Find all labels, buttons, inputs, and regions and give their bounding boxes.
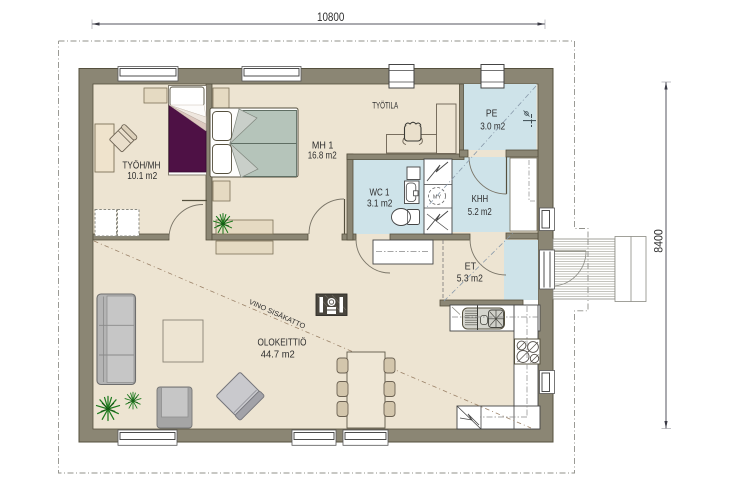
svg-text:3.1 m2: 3.1 m2 — [367, 199, 393, 210]
svg-text:10.1 m2: 10.1 m2 — [127, 171, 157, 182]
svg-text:8400: 8400 — [652, 229, 666, 253]
svg-text:TYÖTILA: TYÖTILA — [372, 101, 398, 111]
svg-text:WC 1: WC 1 — [370, 188, 390, 199]
svg-text:16.8 m2: 16.8 m2 — [308, 150, 337, 161]
svg-text:ET: ET — [465, 262, 477, 273]
svg-text:KHH: KHH — [472, 194, 489, 205]
svg-text:44.7 m2: 44.7 m2 — [261, 350, 295, 361]
svg-text:3.0 m2: 3.0 m2 — [480, 122, 505, 133]
svg-text:10800: 10800 — [317, 10, 345, 24]
svg-text:TYÖH/MH: TYÖH/MH — [122, 160, 160, 171]
svg-text:OLOKEITTIÖ: OLOKEITTIÖ — [258, 337, 307, 348]
svg-text:5.2 m2: 5.2 m2 — [468, 207, 492, 218]
svg-text:PE: PE — [486, 109, 498, 120]
